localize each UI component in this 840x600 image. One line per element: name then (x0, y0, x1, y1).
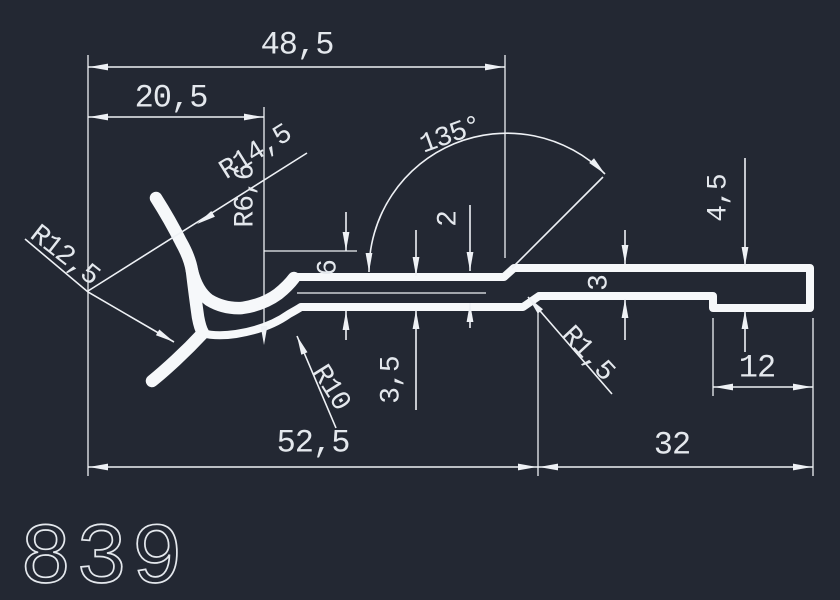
arrow-arc-end-icon (589, 158, 605, 174)
dim-label-pocket-depth: 6 (314, 260, 345, 276)
arrow-leader-icon (197, 211, 215, 224)
part-number-label: 839 (20, 510, 187, 600)
angle-ray (512, 177, 603, 268)
label-radius-pocket: R6,6 (231, 164, 262, 227)
leader-radius-claw: R12,5 (23, 219, 174, 342)
dim-pocket-depth: 6 (314, 212, 350, 340)
arrow-leader-icon (156, 330, 174, 343)
profile-pocket-wall (192, 271, 294, 308)
dim-web-thickness: 3,5 (377, 230, 420, 410)
arrow-left-icon (714, 384, 733, 391)
leader-radius-step-fillet: R1,5 (528, 297, 620, 394)
dim-end-height: 4,5 (704, 158, 749, 352)
arrow-up-icon (413, 310, 420, 329)
dim-flange-length: 32 (538, 427, 813, 471)
arrow-right-icon (485, 64, 504, 71)
leader-radius-pocket: R6,6 (231, 164, 268, 345)
arrow-up-icon (742, 310, 749, 329)
arrow-right-icon (793, 384, 812, 391)
label-radius-step-fillet: R1,5 (554, 320, 620, 388)
arrow-left-icon (89, 64, 108, 71)
cad-drawing: 48,5 20,5 52,5 32 12 4,5 (0, 0, 840, 600)
dim-hook-offset: 20,5 (88, 80, 264, 121)
arrow-left-icon (89, 114, 108, 121)
arrow-down-icon (742, 247, 749, 266)
dim-label-total-width: 48,5 (261, 27, 334, 64)
dim-label-flange-length: 32 (654, 427, 690, 464)
arrow-left-icon (539, 464, 558, 471)
dim-bend-angle: 135° (366, 111, 605, 272)
leader-radius-bottom-fillet: R10 (297, 336, 356, 428)
arrow-arc-start-icon (366, 253, 373, 272)
label-radius-bottom-fillet: R10 (304, 360, 356, 417)
dim-label-step-height: 2 (434, 211, 465, 227)
arrow-down-icon (343, 232, 350, 251)
label-radius-claw: R12,5 (23, 219, 105, 292)
dim-label-body-length: 52,5 (277, 425, 350, 462)
arrow-up-icon (622, 299, 629, 318)
dim-label-bend-angle: 135° (416, 111, 486, 162)
dim-label-hook-offset: 20,5 (135, 80, 208, 117)
angle-arc (369, 133, 605, 272)
arrow-right-icon (244, 114, 263, 121)
dim-label-flange-thickness: 3 (585, 275, 616, 291)
arrow-left-icon (89, 464, 108, 471)
dim-label-end-height: 4,5 (704, 174, 735, 222)
arrow-right-icon (518, 464, 537, 471)
arrow-right-icon (793, 464, 812, 471)
dim-body-length: 52,5 (88, 425, 538, 471)
dim-end-length: 12 (713, 350, 813, 391)
arrow-down-icon (622, 245, 629, 264)
arrow-leader-icon (297, 336, 308, 355)
leader-radius-outer-hook: R14,5 (88, 119, 307, 291)
arrow-leader-icon (261, 326, 268, 345)
dim-total-width: 48,5 (88, 27, 505, 71)
dim-label-end-length: 12 (739, 350, 775, 387)
arrow-up-icon (343, 311, 350, 330)
dim-label-web-thickness: 3,5 (377, 356, 408, 404)
dim-flange-thickness: 3 (585, 230, 629, 340)
arrow-down-icon (467, 252, 474, 271)
cad-viewport: 48,5 20,5 52,5 32 12 4,5 (0, 0, 840, 600)
